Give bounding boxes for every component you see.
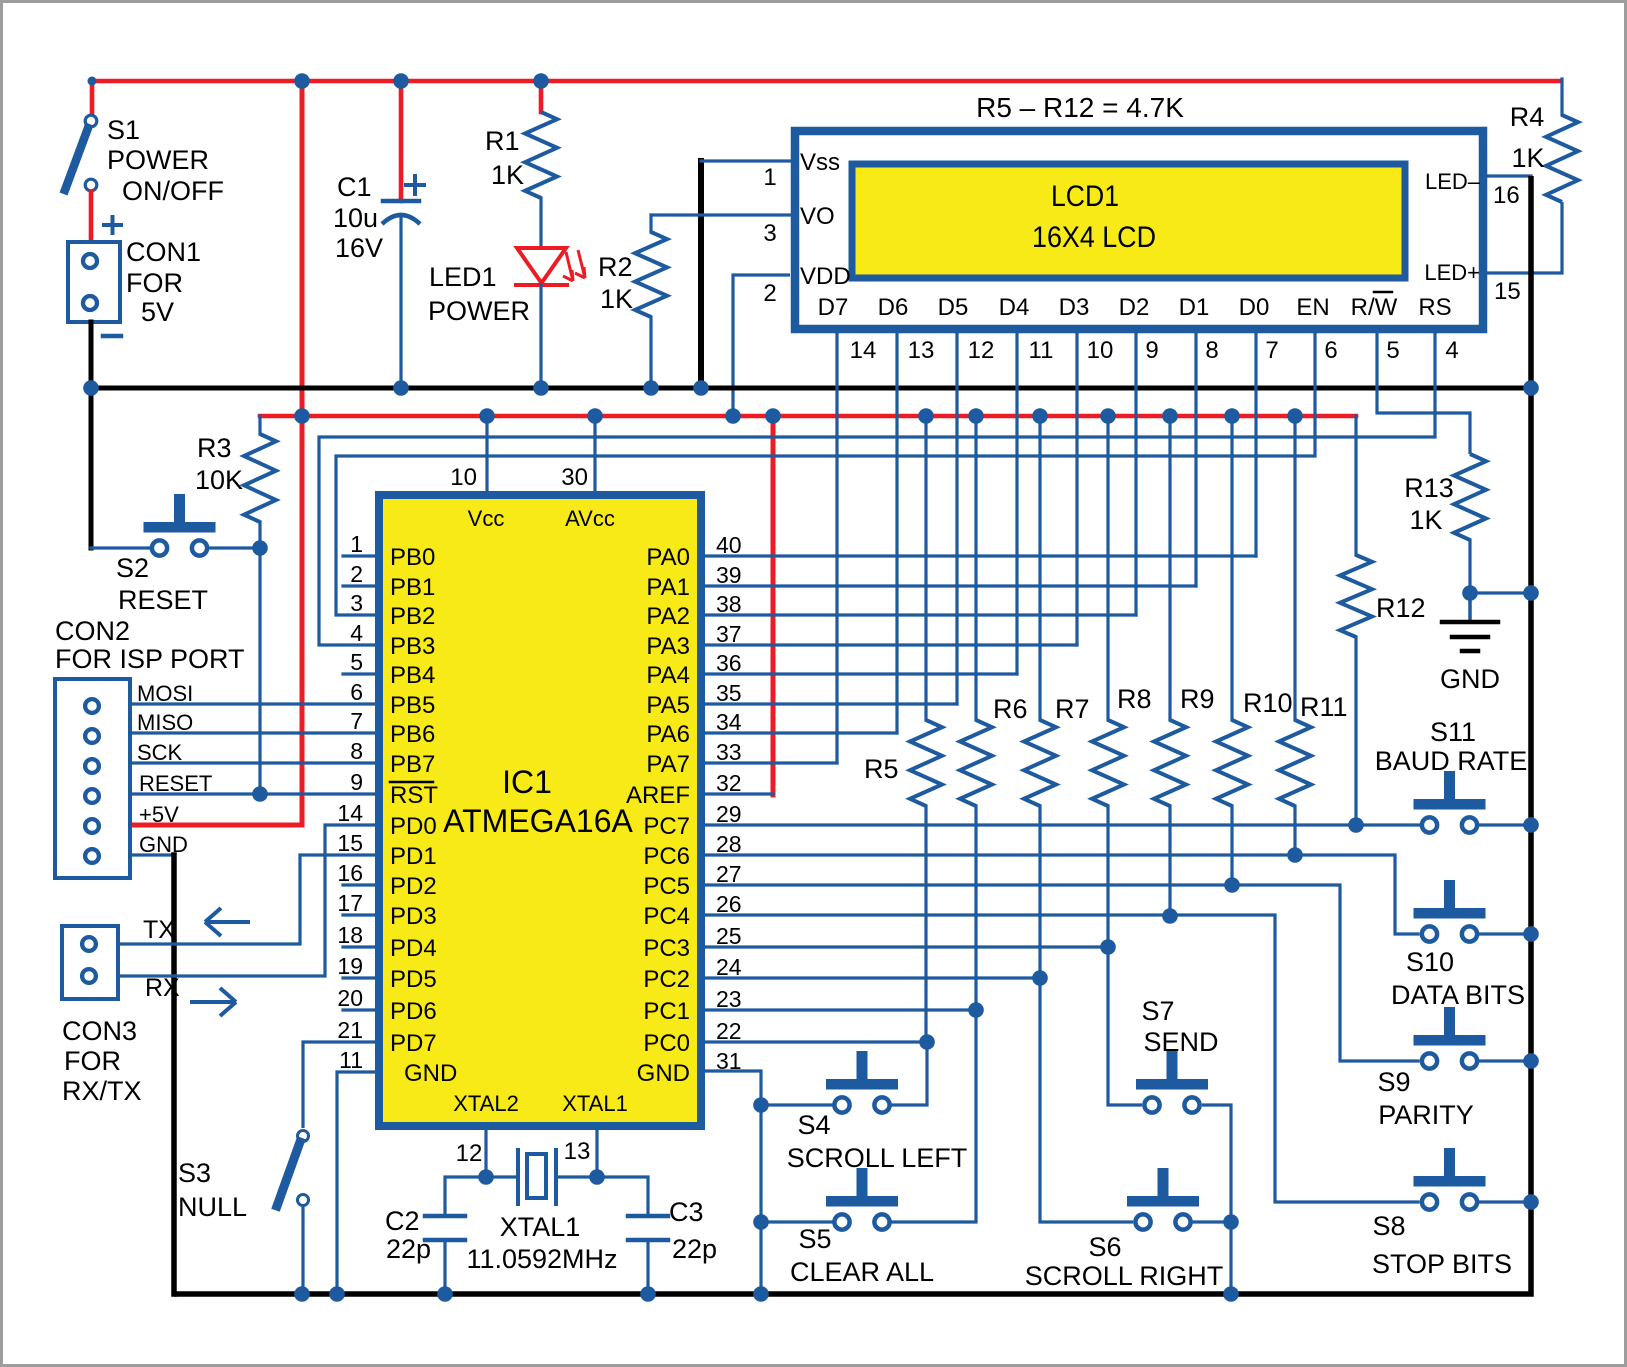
svg-text:LED+: LED+ [1424, 260, 1480, 285]
svg-text:ATMEGA16A: ATMEGA16A [443, 803, 633, 839]
svg-text:PC4: PC4 [643, 903, 690, 930]
svg-text:R4: R4 [1510, 102, 1545, 132]
svg-text:1K: 1K [491, 160, 524, 190]
svg-text:XTAL1: XTAL1 [500, 1212, 581, 1242]
svg-text:LED–: LED– [1425, 169, 1481, 194]
svg-text:PA5: PA5 [646, 692, 690, 719]
svg-text:27: 27 [716, 861, 742, 887]
svg-text:1K: 1K [1511, 143, 1544, 173]
svg-text:D6: D6 [878, 294, 909, 321]
svg-text:PB3: PB3 [390, 633, 435, 660]
svg-text:D3: D3 [1059, 294, 1090, 321]
svg-text:39: 39 [716, 562, 742, 588]
svg-text:29: 29 [716, 801, 742, 827]
svg-text:10K: 10K [195, 465, 243, 495]
svg-text:R2: R2 [598, 252, 633, 282]
svg-text:D1: D1 [1179, 294, 1210, 321]
svg-text:6: 6 [1324, 337, 1337, 364]
svg-text:PC7: PC7 [643, 813, 690, 840]
svg-text:14: 14 [850, 337, 877, 364]
svg-text:34: 34 [716, 709, 742, 735]
svg-text:PA7: PA7 [646, 751, 690, 778]
svg-text:5V: 5V [141, 297, 174, 327]
svg-text:FOR: FOR [64, 1046, 121, 1076]
svg-text:NULL: NULL [178, 1192, 247, 1222]
svg-text:R6: R6 [993, 694, 1028, 724]
svg-text:XTAL2: XTAL2 [453, 1091, 519, 1116]
svg-text:LED1: LED1 [429, 262, 497, 292]
svg-text:23: 23 [716, 986, 742, 1012]
svg-text:SCK: SCK [137, 740, 183, 765]
svg-text:12: 12 [456, 1140, 483, 1167]
svg-text:XTAL1: XTAL1 [562, 1091, 628, 1116]
svg-text:1: 1 [350, 531, 363, 557]
svg-text:22p: 22p [386, 1234, 431, 1264]
svg-text:PC3: PC3 [643, 935, 690, 962]
svg-text:22p: 22p [672, 1234, 717, 1264]
svg-text:R10: R10 [1243, 688, 1293, 718]
svg-text:R12: R12 [1376, 593, 1426, 623]
svg-text:PD4: PD4 [390, 935, 437, 962]
svg-text:D5: D5 [938, 294, 969, 321]
svg-text:S10: S10 [1406, 947, 1454, 977]
svg-text:SCROLL LEFT: SCROLL LEFT [787, 1143, 968, 1173]
svg-text:3: 3 [350, 590, 363, 616]
svg-text:+5V: +5V [139, 802, 179, 827]
svg-text:35: 35 [716, 680, 742, 706]
svg-text:13: 13 [908, 337, 935, 364]
svg-text:R5 – R12 = 4.7K: R5 – R12 = 4.7K [976, 92, 1184, 123]
svg-text:PD3: PD3 [390, 903, 437, 930]
svg-text:5: 5 [1386, 337, 1399, 364]
svg-text:20: 20 [337, 985, 363, 1011]
svg-text:PC0: PC0 [643, 1030, 690, 1057]
svg-text:RESET: RESET [139, 771, 212, 796]
svg-text:TX: TX [143, 916, 175, 944]
svg-text:AVcc: AVcc [565, 506, 615, 531]
svg-text:IC1: IC1 [502, 764, 552, 800]
svg-text:SCROLL RIGHT: SCROLL RIGHT [1025, 1261, 1224, 1291]
svg-text:POWER: POWER [428, 296, 530, 326]
svg-text:30: 30 [561, 464, 588, 491]
svg-text:36: 36 [716, 650, 742, 676]
svg-text:C2: C2 [385, 1206, 420, 1236]
svg-text:VO: VO [800, 203, 835, 230]
svg-text:PD1: PD1 [390, 843, 437, 870]
svg-text:CON2: CON2 [55, 616, 130, 646]
svg-text:25: 25 [716, 923, 742, 949]
svg-text:MISO: MISO [137, 710, 193, 735]
svg-text:9: 9 [350, 769, 363, 795]
svg-text:LCD1: LCD1 [1051, 180, 1119, 213]
svg-text:CON1: CON1 [126, 237, 201, 267]
svg-text:GND: GND [637, 1060, 690, 1087]
svg-text:8: 8 [1205, 337, 1218, 364]
svg-text:16: 16 [1493, 182, 1520, 209]
svg-text:PD5: PD5 [390, 966, 437, 993]
svg-text:S7: S7 [1141, 996, 1174, 1026]
svg-text:D2: D2 [1119, 294, 1150, 321]
svg-text:CLEAR ALL: CLEAR ALL [790, 1257, 934, 1287]
svg-text:C3: C3 [669, 1197, 704, 1227]
svg-text:PB7: PB7 [390, 751, 435, 778]
svg-text:26: 26 [716, 891, 742, 917]
svg-text:PC6: PC6 [643, 843, 690, 870]
svg-text:RESET: RESET [118, 585, 208, 615]
svg-text:4: 4 [1445, 337, 1458, 364]
svg-text:33: 33 [716, 739, 742, 765]
svg-text:PC2: PC2 [643, 966, 690, 993]
svg-text:22: 22 [716, 1018, 742, 1044]
svg-text:13: 13 [564, 1138, 591, 1165]
svg-text:S1: S1 [107, 115, 140, 145]
svg-text:4: 4 [350, 620, 363, 646]
svg-text:PD6: PD6 [390, 998, 437, 1025]
svg-text:5: 5 [350, 649, 363, 675]
svg-text:PD7: PD7 [390, 1030, 437, 1057]
svg-text:10u: 10u [333, 203, 378, 233]
svg-text:PA1: PA1 [646, 574, 690, 601]
svg-text:11: 11 [339, 1047, 363, 1073]
svg-text:D0: D0 [1239, 294, 1270, 321]
svg-text:POWER: POWER [107, 145, 209, 175]
svg-text:FOR: FOR [126, 268, 183, 298]
svg-text:C1: C1 [337, 172, 372, 202]
svg-text:SEND: SEND [1143, 1027, 1218, 1057]
svg-text:S6: S6 [1088, 1232, 1121, 1262]
svg-text:37: 37 [716, 621, 742, 647]
svg-text:D7: D7 [818, 294, 849, 321]
svg-text:9: 9 [1145, 337, 1158, 364]
svg-text:PB2: PB2 [390, 603, 435, 630]
svg-text:RS: RS [1418, 294, 1451, 321]
svg-text:1: 1 [763, 164, 776, 191]
svg-text:11.0592MHz: 11.0592MHz [466, 1244, 617, 1274]
svg-text:AREF: AREF [626, 782, 690, 809]
svg-text:38: 38 [716, 591, 742, 617]
svg-text:BAUD RATE: BAUD RATE [1375, 746, 1528, 776]
svg-text:RX: RX [145, 974, 180, 1002]
svg-text:R9: R9 [1180, 684, 1215, 714]
svg-text:S8: S8 [1372, 1211, 1405, 1241]
svg-text:EN: EN [1296, 294, 1329, 321]
svg-text:10: 10 [450, 464, 477, 491]
svg-text:PA3: PA3 [646, 633, 690, 660]
svg-text:R8: R8 [1117, 684, 1152, 714]
svg-text:PB5: PB5 [390, 692, 435, 719]
svg-text:S11: S11 [1430, 717, 1476, 747]
svg-text:PC1: PC1 [643, 998, 690, 1025]
svg-text:28: 28 [716, 831, 742, 857]
svg-text:11: 11 [1029, 337, 1054, 364]
svg-text:PB0: PB0 [390, 544, 435, 571]
svg-text:PB1: PB1 [390, 574, 435, 601]
svg-text:GND: GND [404, 1060, 457, 1087]
svg-text:DATA BITS: DATA BITS [1391, 980, 1525, 1010]
svg-text:14: 14 [337, 800, 363, 826]
svg-text:R1: R1 [485, 126, 520, 156]
svg-text:PA0: PA0 [646, 544, 690, 571]
svg-text:40: 40 [716, 532, 742, 558]
svg-text:16V: 16V [335, 233, 383, 263]
svg-text:PD2: PD2 [390, 873, 437, 900]
svg-text:FOR ISP PORT: FOR ISP PORT [55, 644, 245, 674]
svg-text:Vcc: Vcc [468, 506, 505, 531]
svg-text:R11: R11 [1300, 692, 1348, 722]
svg-text:1K: 1K [600, 284, 633, 314]
svg-text:S9: S9 [1377, 1067, 1410, 1097]
svg-text:16X4 LCD: 16X4 LCD [1032, 221, 1156, 254]
svg-text:15: 15 [1494, 278, 1521, 305]
svg-text:D4: D4 [999, 294, 1030, 321]
svg-text:21: 21 [337, 1017, 363, 1043]
svg-text:PA4: PA4 [646, 662, 690, 689]
svg-text:PC5: PC5 [643, 873, 690, 900]
svg-text:R5: R5 [864, 754, 899, 784]
svg-text:STOP BITS: STOP BITS [1372, 1249, 1512, 1279]
svg-text:19: 19 [337, 953, 363, 979]
svg-text:PA6: PA6 [646, 721, 690, 748]
svg-text:S5: S5 [798, 1224, 831, 1254]
svg-text:7: 7 [350, 708, 363, 734]
svg-text:PB4: PB4 [390, 662, 435, 689]
svg-text:MOSI: MOSI [137, 681, 193, 706]
svg-text:R3: R3 [197, 433, 232, 463]
svg-text:PARITY: PARITY [1378, 1100, 1474, 1130]
svg-text:PA2: PA2 [646, 603, 690, 630]
svg-text:VDD: VDD [800, 263, 851, 290]
svg-text:18: 18 [337, 922, 363, 948]
svg-text:R13: R13 [1404, 473, 1454, 503]
svg-text:1K: 1K [1409, 505, 1442, 535]
svg-text:S2: S2 [116, 553, 149, 583]
svg-text:Vss: Vss [800, 149, 840, 176]
svg-text:S3: S3 [178, 1158, 211, 1188]
svg-text:GND: GND [1440, 664, 1500, 694]
svg-text:6: 6 [350, 679, 363, 705]
svg-text:RX/TX: RX/TX [62, 1076, 142, 1106]
svg-text:S4: S4 [797, 1110, 830, 1140]
svg-text:10: 10 [1087, 337, 1114, 364]
svg-text:2: 2 [350, 561, 363, 587]
svg-text:R7: R7 [1055, 694, 1090, 724]
svg-text:PB6: PB6 [390, 721, 435, 748]
svg-text:RST: RST [390, 782, 438, 809]
svg-text:CON3: CON3 [62, 1016, 137, 1046]
svg-text:17: 17 [337, 890, 363, 916]
svg-text:7: 7 [1265, 337, 1278, 364]
svg-text:16: 16 [337, 860, 363, 886]
svg-text:2: 2 [763, 280, 776, 307]
svg-text:24: 24 [716, 954, 742, 980]
svg-text:ON/OFF: ON/OFF [122, 176, 224, 206]
svg-text:32: 32 [716, 770, 742, 796]
svg-text:R/W: R/W [1351, 294, 1398, 321]
svg-text:PD0: PD0 [390, 813, 437, 840]
svg-text:8: 8 [350, 738, 363, 764]
svg-text:3: 3 [763, 220, 776, 247]
svg-text:GND: GND [139, 832, 188, 857]
svg-text:12: 12 [968, 337, 995, 364]
svg-text:15: 15 [337, 830, 363, 856]
